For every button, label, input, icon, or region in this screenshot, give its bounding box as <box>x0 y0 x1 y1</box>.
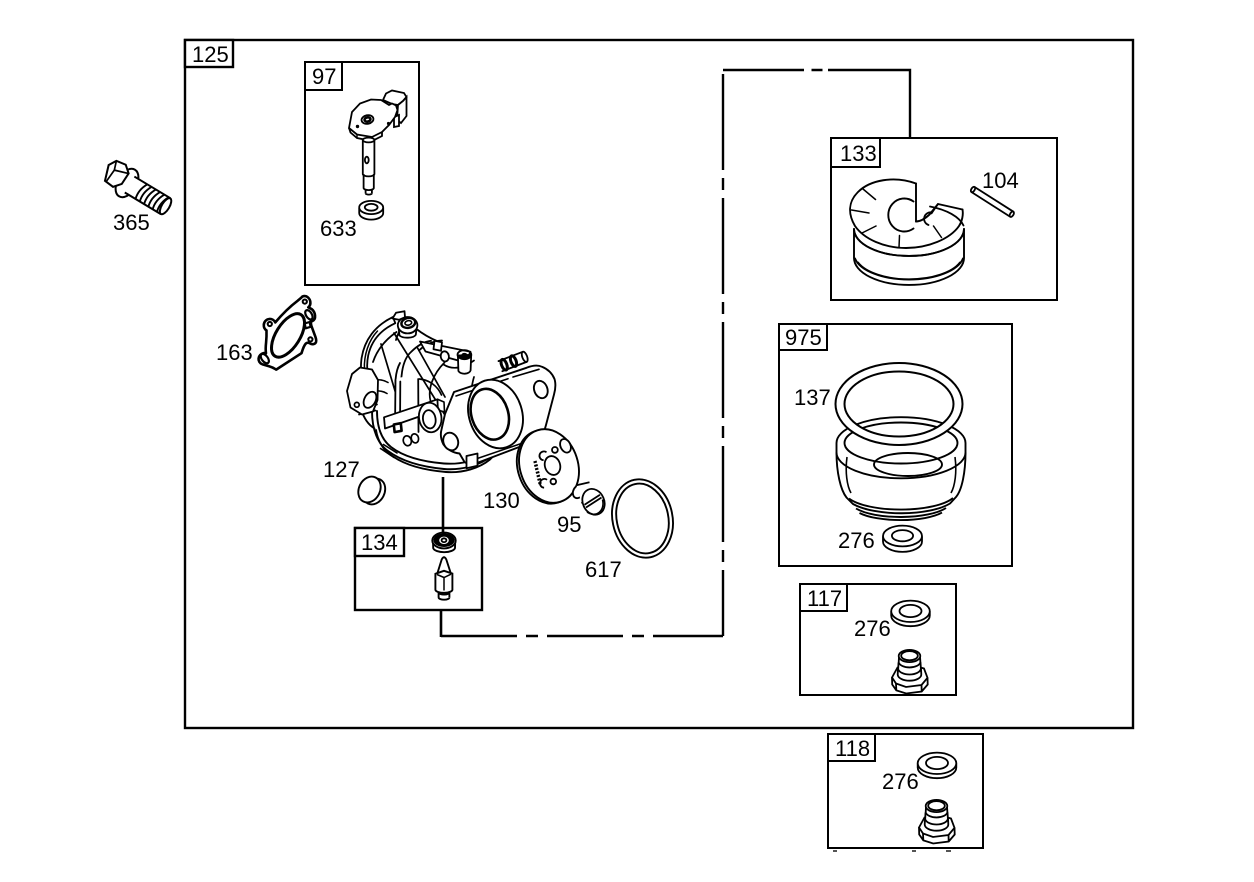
svg-text:118: 118 <box>835 736 870 761</box>
svg-text:104: 104 <box>982 168 1019 193</box>
svg-text:133: 133 <box>840 141 877 166</box>
svg-text:975: 975 <box>785 325 822 350</box>
svg-text:137: 137 <box>794 385 831 410</box>
svg-text:125: 125 <box>192 42 229 67</box>
svg-text:276: 276 <box>882 769 919 794</box>
svg-text:127: 127 <box>323 457 360 482</box>
svg-text:276: 276 <box>838 528 875 553</box>
svg-text:276: 276 <box>854 616 891 641</box>
svg-text:365: 365 <box>113 210 150 235</box>
svg-text:617: 617 <box>585 557 622 582</box>
svg-text:97: 97 <box>312 64 336 89</box>
svg-text:117: 117 <box>807 586 842 611</box>
svg-text:633: 633 <box>320 216 357 241</box>
svg-text:130: 130 <box>483 488 520 513</box>
svg-text:134: 134 <box>361 530 398 555</box>
svg-text:95: 95 <box>557 512 581 537</box>
svg-text:163: 163 <box>216 340 253 365</box>
